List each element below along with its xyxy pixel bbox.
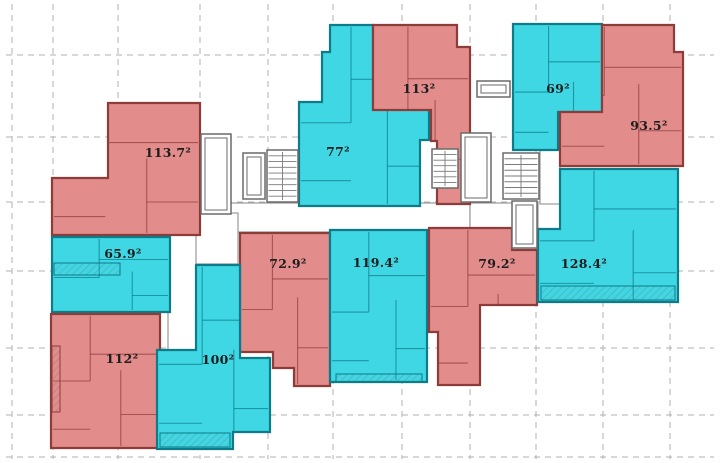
stair-core-b	[432, 149, 458, 188]
roof-shaft	[477, 81, 510, 97]
loggia-112	[52, 346, 60, 412]
apartment-units	[51, 24, 683, 449]
corridor-entry	[168, 232, 196, 350]
unit-69-label: 69²	[546, 81, 570, 96]
unit-79-2-label: 79.2²	[478, 256, 515, 271]
loggia-65-9	[54, 263, 120, 275]
unit-128-4-label: 128.4²	[561, 256, 607, 271]
floor-plan: 113.7²77²113²69²93.5²65.9²72.9²119.4²79.…	[0, 0, 720, 463]
elevator-core-left	[201, 134, 231, 214]
elevator-core-a	[243, 153, 265, 199]
elevator-core-c	[512, 201, 537, 248]
stair-core-c	[503, 153, 539, 199]
unit-65-9-label: 65.9²	[104, 246, 141, 261]
unit-112[interactable]	[51, 314, 160, 448]
unit-113-7[interactable]	[52, 103, 200, 235]
unit-77-label: 77²	[326, 144, 350, 159]
unit-113-7-label: 113.7²	[145, 145, 191, 160]
unit-100-label: 100²	[202, 352, 235, 367]
loggia-119-4	[336, 374, 422, 382]
unit-113-label: 113²	[403, 81, 436, 96]
unit-72-9-label: 72.9²	[269, 256, 306, 271]
loggia-128-4	[541, 286, 675, 300]
unit-119-4-label: 119.4²	[353, 255, 399, 270]
unit-128-4[interactable]	[538, 169, 678, 302]
floor-plan-svg: 113.7²77²113²69²93.5²65.9²72.9²119.4²79.…	[0, 0, 720, 463]
elevator-core-b	[461, 133, 491, 202]
loggia-100	[160, 433, 230, 447]
unit-119-4[interactable]	[330, 230, 427, 382]
unit-112-label: 112²	[106, 351, 139, 366]
unit-93-5-label: 93.5²	[630, 118, 667, 133]
stair-core-a	[267, 150, 298, 202]
unit-79-2[interactable]	[429, 228, 537, 385]
